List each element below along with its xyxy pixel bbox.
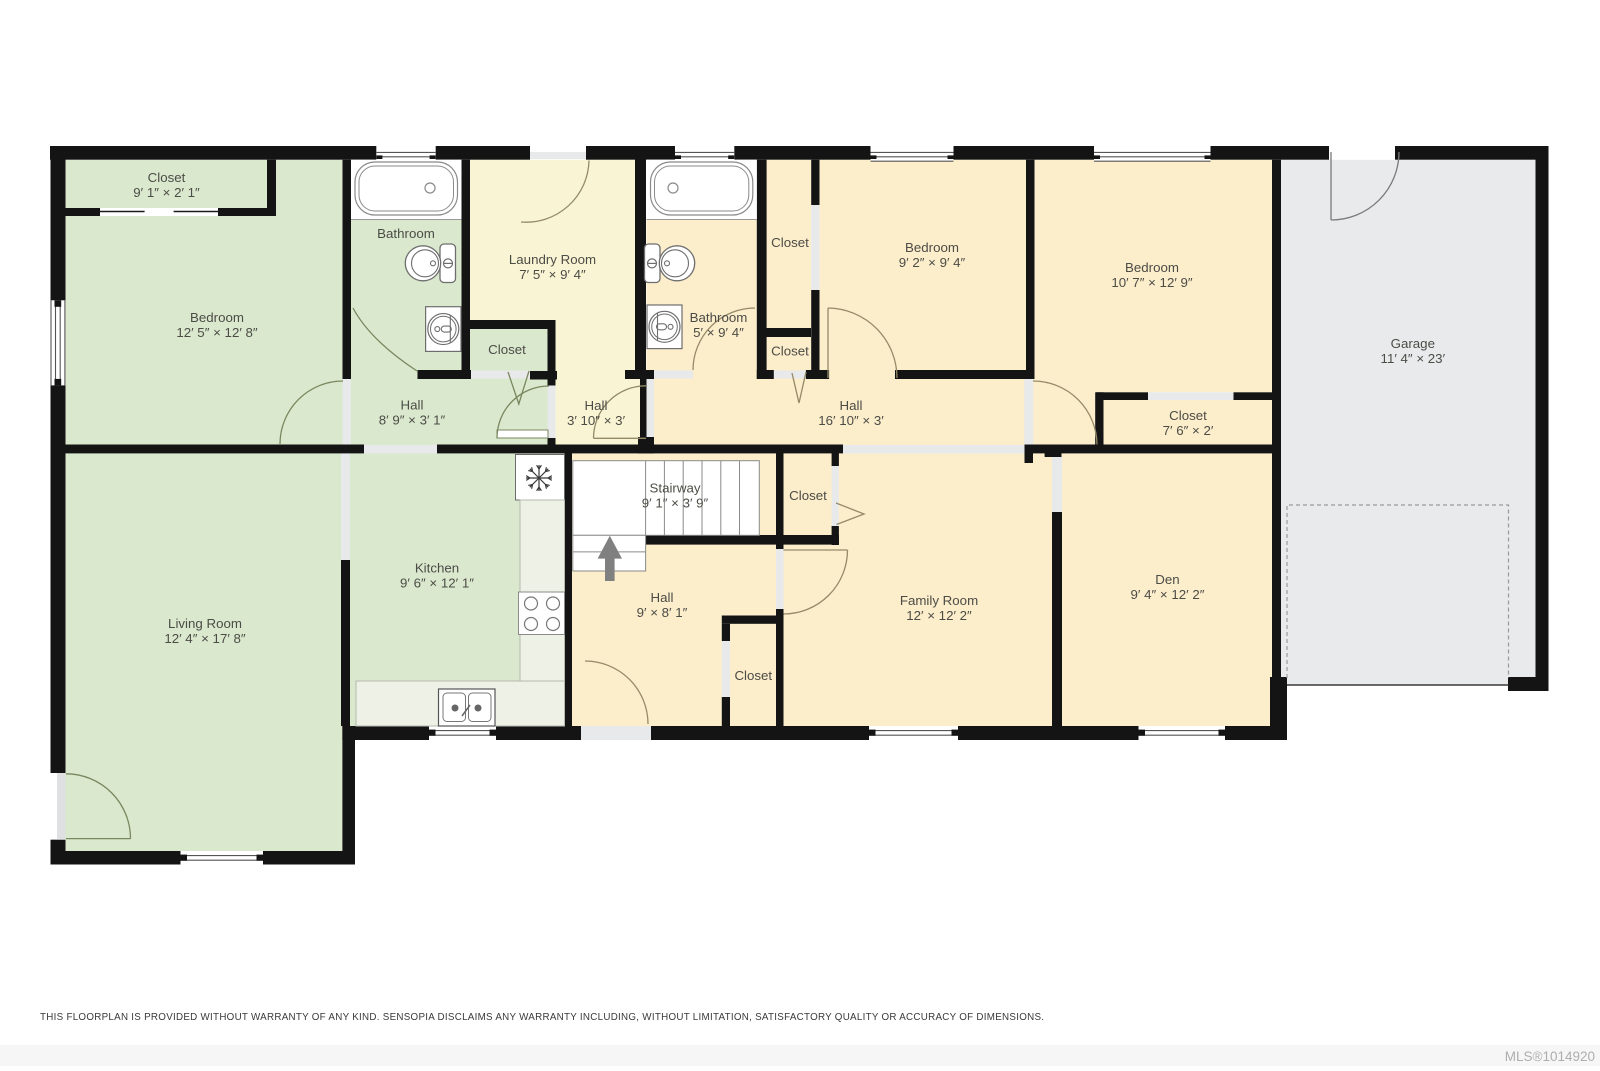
svg-text:Hall: Hall xyxy=(840,398,863,413)
svg-text:9′ 6″ × 12′ 1″: 9′ 6″ × 12′ 1″ xyxy=(400,576,474,591)
svg-text:Bedroom: Bedroom xyxy=(1125,260,1179,275)
svg-text:5′ × 9′ 4″: 5′ × 9′ 4″ xyxy=(693,325,744,340)
svg-text:Closet: Closet xyxy=(771,235,809,250)
svg-text:Bedroom: Bedroom xyxy=(905,240,959,255)
svg-text:7′ 6″ × 2′: 7′ 6″ × 2′ xyxy=(1163,423,1214,438)
svg-text:Hall: Hall xyxy=(651,590,674,605)
svg-text:Family Room: Family Room xyxy=(900,593,978,608)
svg-text:MLS®1014920: MLS®1014920 xyxy=(1505,1049,1595,1064)
svg-text:Kitchen: Kitchen xyxy=(415,561,459,576)
svg-text:Closet: Closet xyxy=(148,170,186,185)
svg-text:Bathroom: Bathroom xyxy=(690,310,748,325)
svg-text:THIS FLOORPLAN IS PROVIDED WIT: THIS FLOORPLAN IS PROVIDED WITHOUT WARRA… xyxy=(40,1012,1044,1023)
svg-text:Living Room: Living Room xyxy=(168,616,242,631)
svg-text:Closet: Closet xyxy=(1169,408,1207,423)
svg-text:12′ 4″ × 17′ 8″: 12′ 4″ × 17′ 8″ xyxy=(164,631,246,646)
svg-text:Closet: Closet xyxy=(771,344,809,359)
svg-text:8′ 9″ × 3′ 1″: 8′ 9″ × 3′ 1″ xyxy=(379,413,446,428)
svg-text:Bathroom: Bathroom xyxy=(377,226,435,241)
svg-text:Den: Den xyxy=(1155,572,1179,587)
svg-text:9′ 1″ × 2′ 1″: 9′ 1″ × 2′ 1″ xyxy=(133,185,200,200)
svg-text:9′ 2″ × 9′ 4″: 9′ 2″ × 9′ 4″ xyxy=(899,255,966,270)
svg-text:9′ 4″ × 12′ 2″: 9′ 4″ × 12′ 2″ xyxy=(1131,587,1205,602)
svg-text:Stairway: Stairway xyxy=(650,481,701,496)
svg-text:Hall: Hall xyxy=(585,398,608,413)
svg-text:9′ × 8′ 1″: 9′ × 8′ 1″ xyxy=(637,605,688,620)
svg-text:10′ 7″ × 12′ 9″: 10′ 7″ × 12′ 9″ xyxy=(1111,275,1193,290)
svg-text:9′ 1″ × 3′ 9″: 9′ 1″ × 3′ 9″ xyxy=(642,496,709,511)
svg-text:12′ 5″ × 12′ 8″: 12′ 5″ × 12′ 8″ xyxy=(176,325,258,340)
svg-text:3′ 10″ × 3′: 3′ 10″ × 3′ xyxy=(567,413,626,428)
svg-text:Garage: Garage xyxy=(1391,336,1435,351)
svg-text:11′ 4″ × 23′: 11′ 4″ × 23′ xyxy=(1381,351,1446,366)
svg-text:16′ 10″ × 3′: 16′ 10″ × 3′ xyxy=(818,413,884,428)
svg-text:Closet: Closet xyxy=(734,668,772,683)
svg-text:7′ 5″ × 9′ 4″: 7′ 5″ × 9′ 4″ xyxy=(519,267,586,282)
svg-text:Laundry Room: Laundry Room xyxy=(509,252,596,267)
svg-text:Closet: Closet xyxy=(789,488,827,503)
svg-text:Bedroom: Bedroom xyxy=(190,310,244,325)
svg-text:Closet: Closet xyxy=(488,342,526,357)
svg-text:Hall: Hall xyxy=(401,398,424,413)
svg-text:12′ × 12′ 2″: 12′ × 12′ 2″ xyxy=(906,608,972,623)
